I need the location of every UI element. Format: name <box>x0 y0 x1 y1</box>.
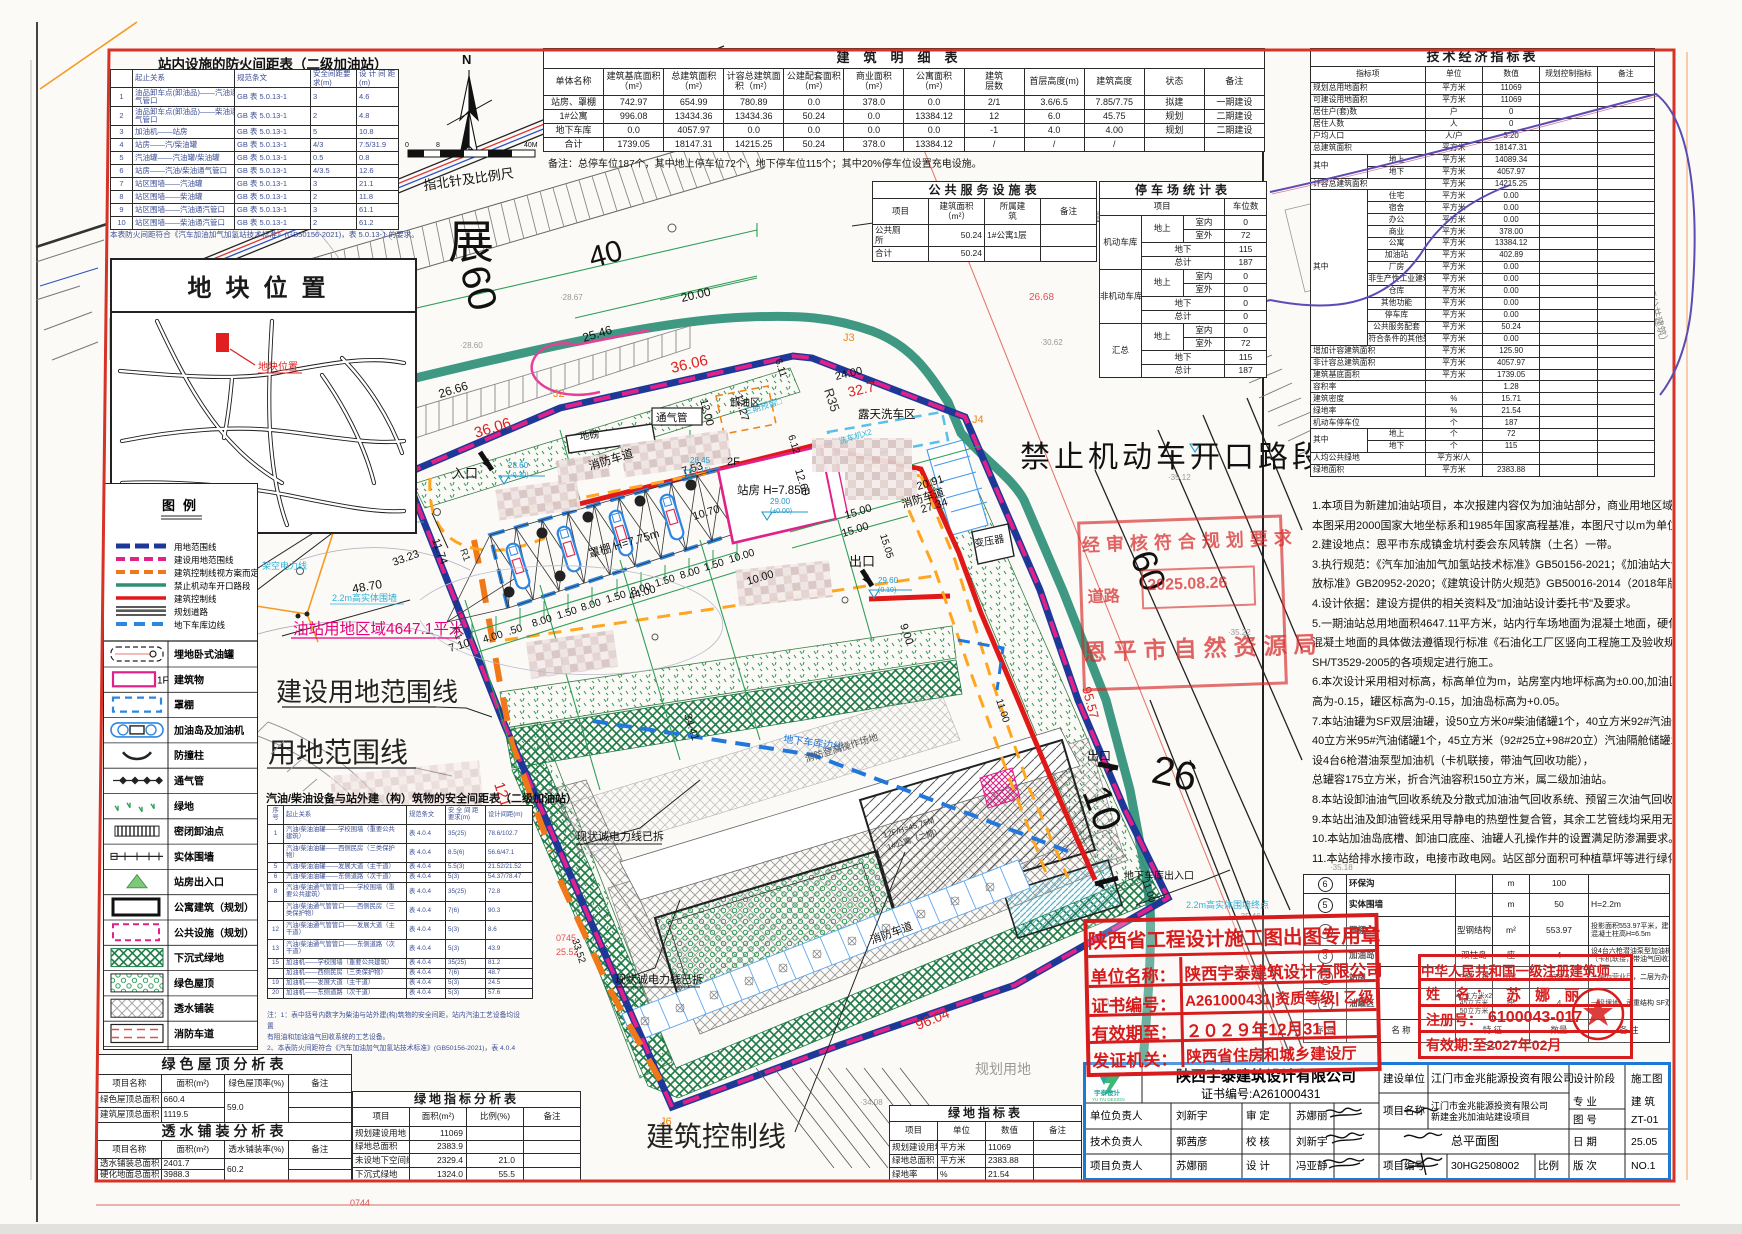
svg-text:(-0.30): (-0.30) <box>508 472 529 479</box>
svg-text:图 号: 图 号 <box>1573 1114 1597 1126</box>
svg-text:总平面图: 总平面图 <box>1451 1134 1499 1148</box>
svg-text:R1: R1 <box>457 547 472 563</box>
svg-text:站房出入口: 站房出入口 <box>174 876 224 889</box>
svg-text:J3: J3 <box>843 332 855 344</box>
svg-text:刘新宇: 刘新宇 <box>1176 1109 1208 1122</box>
svg-text:现状诚电力线已拆: 现状诚电力线已拆 <box>615 972 703 986</box>
svg-text:绿地: 绿地 <box>174 800 194 813</box>
svg-text:R35: R35 <box>821 386 843 413</box>
svg-text:30HG2508002: 30HG2508002 <box>1451 1160 1519 1172</box>
svg-text:8.00: 8.00 <box>530 612 553 629</box>
svg-text:YU TAI DESIGN: YU TAI DESIGN <box>1092 1097 1125 1102</box>
svg-text:消防车道: 消防车道 <box>174 1028 214 1041</box>
svg-text:地磅: 地磅 <box>579 427 601 443</box>
svg-text:·28.60: ·28.60 <box>460 341 483 350</box>
svg-text:·30.62: ·30.62 <box>1040 338 1063 347</box>
svg-text:15.05: 15.05 <box>877 533 895 561</box>
svg-text:96.04: 96.04 <box>913 1005 952 1033</box>
svg-text:郭茜彦: 郭茜彦 <box>1176 1135 1208 1148</box>
svg-text:公共设施（规划）: 公共设施（规划） <box>174 926 254 939</box>
svg-text:江门市金兆能源投资有限公司: 江门市金兆能源投资有限公司 <box>1431 1071 1574 1085</box>
svg-text:7.10: 7.10 <box>447 637 471 655</box>
svg-text:26.68: 26.68 <box>1029 292 1054 303</box>
svg-text:建筑物: 建筑物 <box>173 673 204 686</box>
svg-text:29.60: 29.60 <box>878 576 899 585</box>
svg-text:绿色屋顶: 绿色屋顶 <box>174 977 214 990</box>
svg-text:1.50: 1.50 <box>653 572 676 589</box>
svg-text:11.00: 11.00 <box>993 698 1011 725</box>
svg-text:施工图: 施工图 <box>1631 1072 1663 1085</box>
svg-text:地下车库出入口: 地下车库出入口 <box>1124 869 1194 882</box>
svg-text:比例: 比例 <box>1538 1159 1559 1172</box>
svg-text:25.05: 25.05 <box>1631 1136 1657 1148</box>
svg-text:公寓建筑（规划）: 公寓建筑（规划） <box>174 901 254 914</box>
svg-text:罩棚: 罩棚 <box>174 699 194 712</box>
svg-text:加油岛及加油机: 加油岛及加油机 <box>173 724 244 737</box>
svg-text:苏娜丽: 苏娜丽 <box>1176 1159 1208 1172</box>
svg-text:建 筑: 建 筑 <box>1631 1095 1655 1108</box>
svg-text:用地范围线: 用地范围线 <box>174 542 217 552</box>
svg-text:60: 60 <box>451 261 505 315</box>
svg-text:项目负责人: 项目负责人 <box>1090 1159 1143 1172</box>
svg-text:29.00: 29.00 <box>770 497 791 506</box>
svg-text:设计阶段: 设计阶段 <box>1573 1072 1615 1085</box>
svg-text:通气管: 通气管 <box>174 775 204 788</box>
svg-text:专 业: 专 业 <box>1573 1095 1597 1108</box>
svg-text:密闭卸油点: 密闭卸油点 <box>174 825 224 838</box>
svg-text:28.45: 28.45 <box>690 456 711 465</box>
svg-text:·34.08: ·34.08 <box>860 1098 883 1107</box>
svg-text:用地范围线: 用地范围线 <box>268 737 408 768</box>
svg-text:2F: 2F <box>727 456 740 468</box>
svg-text:新建金兆加油站建设项目: 新建金兆加油站建设项目 <box>1431 1111 1530 1122</box>
svg-text:20.00: 20.00 <box>680 284 713 304</box>
svg-text:(±0.00): (±0.00) <box>770 508 792 515</box>
svg-text:1.50: 1.50 <box>555 604 578 621</box>
svg-text:通气管: 通气管 <box>656 411 688 424</box>
svg-text:NO.1: NO.1 <box>1631 1160 1656 1172</box>
svg-text:·35.12: ·35.12 <box>1168 473 1191 482</box>
svg-text:1F: 1F <box>157 675 169 686</box>
svg-text:·28.67: ·28.67 <box>560 293 583 302</box>
svg-text:禁止机动车开口路段: 禁止机动车开口路段 <box>1020 441 1326 474</box>
svg-text:10.00: 10.00 <box>727 547 756 566</box>
svg-text:J4: J4 <box>972 414 984 426</box>
svg-text:20: 20 <box>462 142 470 149</box>
svg-text:指北针及比例尺: 指北针及比例尺 <box>422 165 514 193</box>
svg-text:现状诚电力线已拆: 现状诚电力线已拆 <box>576 829 664 843</box>
svg-text:4.00: 4.00 <box>481 628 504 645</box>
svg-text:规划用地: 规划用地 <box>975 1061 1031 1077</box>
svg-text:8: 8 <box>436 142 440 149</box>
svg-text:透水铺装: 透水铺装 <box>174 1002 214 1015</box>
svg-text:展: 展 <box>448 216 494 268</box>
svg-text:建筑控制线: 建筑控制线 <box>174 594 217 604</box>
svg-text:技术负责人: 技术负责人 <box>1090 1135 1143 1148</box>
svg-text:J6: J6 <box>660 1116 672 1128</box>
svg-text:10.70: 10.70 <box>691 503 721 523</box>
svg-text:架空电力线: 架空电力线 <box>262 560 307 571</box>
svg-text:33.23: 33.23 <box>391 548 421 569</box>
svg-text:40: 40 <box>585 234 626 275</box>
svg-text:油站用地区域4647.1平米: 油站用地区域4647.1平米 <box>293 620 464 638</box>
svg-text:15.00: 15.00 <box>843 502 873 522</box>
svg-text:禁止机动车开口路段: 禁止机动车开口路段 <box>174 581 251 591</box>
svg-text:苏娜丽: 苏娜丽 <box>1296 1109 1328 1122</box>
svg-text:实体围墙: 实体围墙 <box>174 850 214 863</box>
svg-text:露天洗车区: 露天洗车区 <box>858 407 916 421</box>
svg-text:图例: 图例 <box>162 498 204 513</box>
svg-text:0: 0 <box>405 142 409 149</box>
svg-text:防撞柱: 防撞柱 <box>174 749 204 762</box>
svg-text:刘新宇: 刘新宇 <box>1296 1135 1328 1148</box>
svg-text:下沉式绿地: 下沉式绿地 <box>174 952 224 965</box>
svg-text:入口: 入口 <box>452 466 478 481</box>
svg-text:建设用地范围线: 建设用地范围线 <box>174 555 234 565</box>
svg-text:建设单位: 建设单位 <box>1383 1072 1425 1085</box>
svg-text:(0.10): (0.10) <box>878 587 896 594</box>
svg-text:版 次: 版 次 <box>1573 1159 1597 1172</box>
svg-text:单位负责人: 单位负责人 <box>1090 1109 1143 1122</box>
svg-text:ZT-01: ZT-01 <box>1631 1114 1659 1126</box>
svg-text:8.00: 8.00 <box>678 564 701 581</box>
svg-text:28.60: 28.60 <box>508 461 529 470</box>
svg-text:32.7: 32.7 <box>846 378 876 400</box>
svg-text:审 定: 审 定 <box>1246 1109 1270 1122</box>
svg-text:地块位置: 地块位置 <box>258 360 298 373</box>
svg-text:26: 26 <box>1148 748 1201 800</box>
svg-text:出口: 出口 <box>1087 749 1111 763</box>
svg-text:0744: 0744 <box>350 1198 370 1208</box>
svg-text:(-0.15): (-0.15) <box>690 467 711 474</box>
svg-text:2.2m高实体围墙终点: 2.2m高实体围墙终点 <box>1186 899 1269 910</box>
svg-text:出口: 出口 <box>849 554 875 569</box>
svg-text:N: N <box>462 52 471 67</box>
svg-text:.50: .50 <box>506 622 524 638</box>
svg-text:规划道路: 规划道路 <box>174 607 209 617</box>
svg-text:40M: 40M <box>524 142 538 149</box>
svg-text:江门市金兆能源投资有限公司: 江门市金兆能源投资有限公司 <box>1431 1100 1548 1111</box>
svg-text:15.00: 15.00 <box>840 520 870 540</box>
svg-text:设 计: 设 计 <box>1246 1159 1270 1172</box>
svg-text:埋地卧式油罐: 埋地卧式油罐 <box>174 648 234 661</box>
svg-text:校 核: 校 核 <box>1246 1135 1270 1148</box>
svg-text:证书编号:A261000431: 证书编号:A261000431 <box>1201 1086 1321 1101</box>
svg-text:地下车库边线: 地下车库边线 <box>174 620 226 630</box>
svg-text:建设用地范围线: 建设用地范围线 <box>276 677 458 707</box>
svg-text:冯亚静: 冯亚静 <box>1296 1159 1328 1172</box>
svg-text:日 期: 日 期 <box>1573 1136 1597 1148</box>
svg-text:建筑控制线视方案而定: 建筑控制线视方案而定 <box>174 568 257 578</box>
svg-text:宇泰设计: 宇泰设计 <box>1094 1088 1121 1097</box>
